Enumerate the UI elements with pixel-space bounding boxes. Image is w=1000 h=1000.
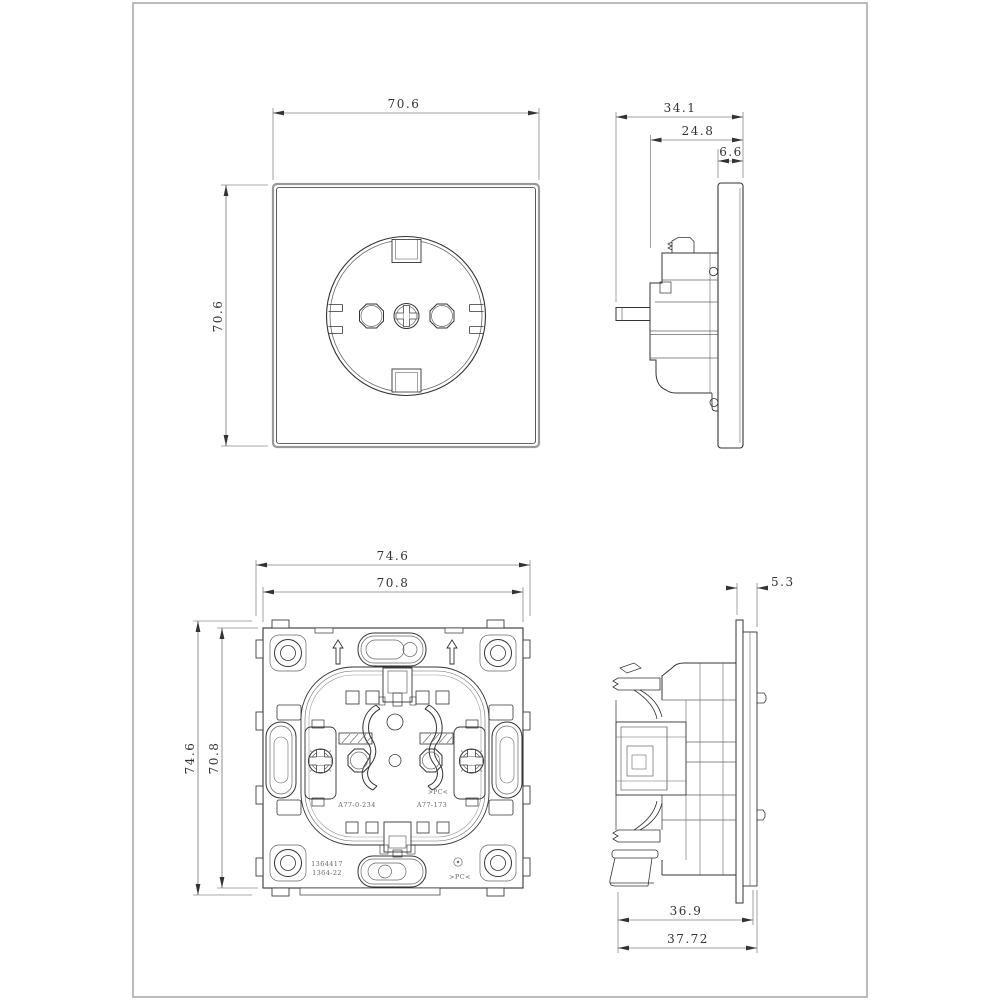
dim-label: 37.72 xyxy=(667,932,709,946)
dim-label: 70.6 xyxy=(388,97,421,111)
bottom-hook xyxy=(710,399,718,407)
part-number-right: A77-173 xyxy=(416,801,447,809)
part-number-left: A77-0-234 xyxy=(337,801,376,809)
mechanism-profile xyxy=(616,238,718,412)
dim-label: 70.8 xyxy=(207,742,221,775)
expansion-claw-upper xyxy=(613,678,660,690)
dim-label: 70.8 xyxy=(377,576,410,590)
plate-profile xyxy=(718,183,743,448)
latch-hook-upper xyxy=(757,693,766,703)
dim-label: 70.6 xyxy=(211,300,225,333)
dim-back-inner-width: 70.8 xyxy=(263,576,523,622)
pc-marking-center: >PC< xyxy=(428,789,448,796)
faceplate-side-view: 34.1 24.8 6.6 xyxy=(616,101,743,448)
dim-label: 74.6 xyxy=(183,742,197,775)
mold-code-line1: 1364417 xyxy=(311,860,343,868)
mold-code-line2: 1364-22 xyxy=(312,869,342,877)
top-hook xyxy=(709,267,717,275)
latch-hook-lower xyxy=(757,810,765,820)
center-screw-icon xyxy=(394,304,419,329)
dim-front-height: 70.6 xyxy=(211,185,268,446)
bottom-latch xyxy=(380,822,415,857)
dim-side-plate-thickness: 6.6 xyxy=(718,145,743,178)
dim-label: 6.6 xyxy=(719,145,743,159)
dim-label: 5.3 xyxy=(771,575,795,589)
frame-flange xyxy=(736,620,743,903)
mechanism-side-view: 5.3 36.9 37.72 xyxy=(610,575,795,953)
technical-drawing: 70.6 70.6 xyxy=(0,0,1000,1000)
drawing-sheet: 70.6 70.6 xyxy=(0,0,1000,1000)
dim-back-inner-height: 70.8 xyxy=(207,628,258,888)
mechanism-back-view: A77-0-234 A77-173 >PC< 1364417 1364-22 >… xyxy=(183,549,530,896)
dim-front-width: 70.6 xyxy=(273,97,539,180)
top-latch xyxy=(379,668,416,706)
dim-mech-flange-depth: 5.3 xyxy=(726,575,795,627)
expansion-claw-lower xyxy=(613,830,660,842)
dim-label: 36.9 xyxy=(670,904,703,918)
faceplate-front-view: 70.6 70.6 xyxy=(211,97,539,447)
dim-label: 74.6 xyxy=(377,549,410,563)
pc-marking-bottom: >PC< xyxy=(449,873,471,881)
claw-top xyxy=(672,238,694,254)
dim-label: 34.1 xyxy=(664,101,697,115)
mechanism-body-profile xyxy=(610,663,736,886)
support-pin xyxy=(616,308,650,321)
terminal-block xyxy=(616,722,686,795)
dim-label: 24.8 xyxy=(682,124,715,138)
